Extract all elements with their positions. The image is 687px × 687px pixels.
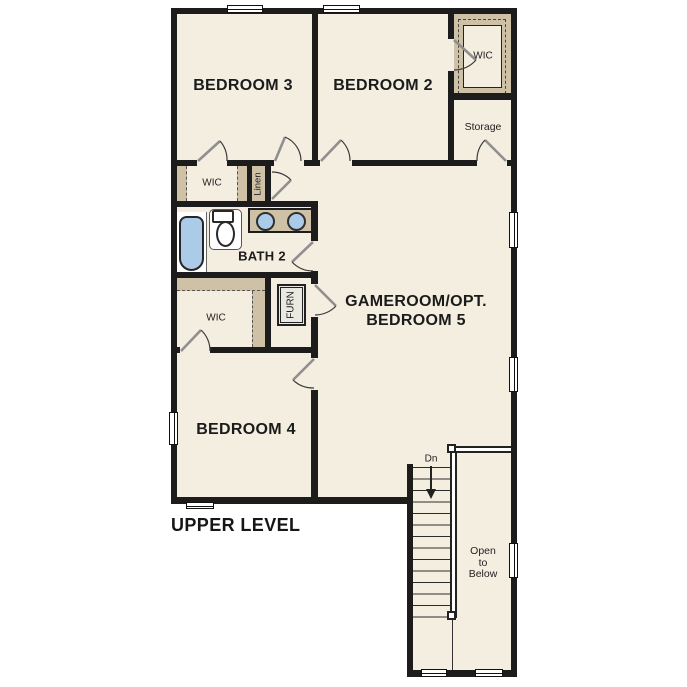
- stair-railing: [450, 449, 457, 618]
- railing-post: [447, 611, 456, 620]
- floor-plan: BEDROOM 3 BEDROOM 2 GAMEROOM/OPT. BEDROO…: [0, 0, 687, 687]
- stairs-down-label: Dn: [425, 454, 438, 465]
- wall: [311, 390, 318, 504]
- stair-railing: [452, 446, 511, 453]
- room-label-bath2: BATH 2: [238, 249, 286, 264]
- gameroom-line1: GAMEROOM/OPT.: [345, 292, 487, 311]
- wall: [448, 93, 517, 100]
- room-label-bedroom2: BEDROOM 2: [333, 77, 433, 95]
- room-label-gameroom: GAMEROOM/OPT. BEDROOM 5: [345, 292, 487, 330]
- window: [323, 5, 360, 13]
- wall: [210, 347, 318, 353]
- wall: [311, 278, 318, 284]
- window: [509, 212, 518, 248]
- down-arrow-head-icon: [426, 489, 436, 499]
- room-label-linen: Linen: [253, 172, 264, 195]
- room-label-storage: Storage: [465, 121, 502, 133]
- wall: [265, 166, 271, 207]
- wall: [171, 160, 197, 166]
- wall: [171, 347, 180, 353]
- wall: [247, 166, 252, 207]
- window: [227, 5, 263, 13]
- window: [509, 543, 518, 578]
- wic-lower-shelf-right: [252, 291, 265, 347]
- room-label-wic-lower: WIC: [206, 313, 225, 324]
- window: [509, 357, 518, 392]
- room-label-wic-upper: WIC: [202, 178, 221, 189]
- window: [186, 502, 214, 509]
- wall: [311, 353, 318, 358]
- gameroom-line2: BEDROOM 5: [345, 311, 487, 330]
- wall: [171, 201, 318, 207]
- wall: [171, 272, 318, 278]
- sink-icon: [256, 212, 275, 231]
- railing-post: [447, 444, 456, 453]
- window: [421, 669, 447, 677]
- stair-edge-line: [452, 617, 453, 670]
- room-label-bedroom3: BEDROOM 3: [193, 77, 293, 95]
- wic-lower-shelf-top: [177, 278, 265, 291]
- sink-icon: [287, 212, 306, 231]
- wall: [304, 160, 320, 166]
- wall: [311, 271, 318, 278]
- bathtub-icon: [179, 216, 204, 271]
- window: [475, 669, 503, 677]
- room-label-wic-top-right: WIC: [473, 51, 492, 62]
- wic-upper-shelf-left: [177, 166, 187, 201]
- open-to-below-line1: Open: [469, 546, 498, 558]
- open-to-below-line3: Below: [469, 569, 498, 581]
- wall: [448, 71, 454, 162]
- wall: [507, 160, 517, 166]
- open-to-below-label: Open to Below: [469, 546, 498, 581]
- room-label-bedroom4: BEDROOM 4: [196, 421, 296, 439]
- toilet-bowl-icon: [216, 221, 235, 247]
- wall: [448, 14, 454, 39]
- wall: [312, 14, 318, 162]
- wall: [265, 278, 271, 347]
- room-label-furnace: FURN: [286, 291, 297, 319]
- page-title: UPPER LEVEL: [171, 515, 300, 536]
- window: [169, 412, 178, 445]
- down-arrow-icon: [430, 466, 432, 491]
- wall: [352, 160, 477, 166]
- wic-upper-shelf-right: [237, 166, 247, 201]
